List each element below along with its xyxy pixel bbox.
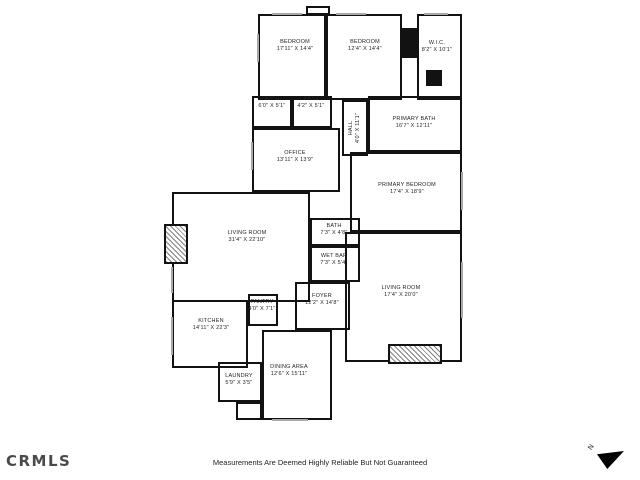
- north-arrow-icon: [597, 451, 624, 469]
- floorplan-page: BEDROOM17'11" X 14'4"BEDROOM12'4" X 14'4…: [0, 0, 640, 480]
- fireplace-right: [388, 344, 442, 364]
- room-name: HALL: [348, 113, 355, 143]
- room-dimensions: 7'3" X 5'4": [320, 260, 347, 267]
- solid-chase-top: [402, 28, 417, 58]
- room-name: PRIMARY BEDROOM: [378, 182, 436, 189]
- room-dimensions: 4'2" X 5'1": [297, 103, 324, 110]
- room-label-kitchen: KITCHEN14'11" X 22'3": [193, 318, 230, 332]
- floor-plan: BEDROOM17'11" X 14'4"BEDROOM12'4" X 14'4…: [0, 0, 640, 480]
- room-dimensions: 6'0" X 5'1": [258, 103, 285, 110]
- window-segment: [251, 142, 253, 170]
- footer: CRMLS Measurements Are Deemed Highly Rel…: [0, 440, 640, 480]
- room-label-laundry: LAUNDRY5'9" X 3'5": [225, 373, 253, 387]
- room-name: DINING AREA: [270, 364, 308, 371]
- room-name: LIVING ROOM: [228, 230, 267, 237]
- room-label-bedroom-2: BEDROOM12'4" X 14'4": [348, 39, 382, 53]
- room-dimensions: 14'11" X 22'3": [193, 325, 230, 332]
- room-label-wet-bar: WET BAR7'3" X 5'4": [320, 253, 347, 267]
- room-label-office: OFFICE13'11" X 13'9": [277, 150, 314, 164]
- room-dimensions: 12'6" X 15'11": [270, 371, 308, 378]
- room-name: OFFICE: [277, 150, 314, 157]
- room-name: BATH: [258, 96, 285, 103]
- window-segment: [272, 13, 302, 15]
- room-label-hall: HALL4'0" X 11'1": [348, 113, 362, 143]
- window-segment: [272, 419, 308, 421]
- room-name: LIVING ROOM: [382, 285, 421, 292]
- window-segment: [171, 317, 173, 355]
- room-dimensions: 17'11" X 14'4": [277, 46, 314, 53]
- room-label-primary-bath: PRIMARY BATH16'7" X 12'11": [392, 116, 435, 130]
- room-label-living-room-1: LIVING ROOM31'4" X 22'10": [228, 230, 267, 244]
- chimney-top: [306, 6, 330, 15]
- room-name: BATH: [320, 223, 347, 230]
- room-label-foyer: FOYER12'2" X 14'8": [305, 293, 339, 307]
- window-segment: [257, 34, 259, 62]
- room-living-room-1: [172, 192, 310, 302]
- room-dimensions: 4'0" X 11'1": [355, 113, 362, 143]
- room-kitchen: [172, 300, 248, 368]
- room-name: BATH: [297, 96, 324, 103]
- room-name: LAUNDRY: [225, 373, 253, 380]
- room-bedroom-2: [326, 14, 402, 100]
- disclaimer-text: Measurements Are Deemed Highly Reliable …: [0, 458, 640, 467]
- fireplace-left: [164, 224, 188, 264]
- window-segment: [336, 13, 366, 15]
- closet-nook: [236, 402, 262, 420]
- room-name: BEDROOM: [348, 39, 382, 46]
- room-dimensions: 7'3" X 4'8": [320, 230, 347, 237]
- room-dimensions: 4'0" X 7'1": [248, 306, 275, 313]
- room-bedroom-1: [258, 14, 326, 100]
- room-name: BEDROOM: [277, 39, 314, 46]
- window-segment: [171, 267, 173, 293]
- room-name: PANTRY: [248, 299, 275, 306]
- compass-n-label: N: [587, 443, 596, 451]
- room-label-bath-2: BATH4'2" X 5'1": [297, 96, 324, 110]
- solid-chase-wic: [426, 70, 442, 86]
- room-label-bath-3: BATH7'3" X 4'8": [320, 223, 347, 237]
- room-label-primary-bedroom: PRIMARY BEDROOM17'4" X 18'9": [378, 182, 436, 196]
- window-segment: [424, 13, 448, 15]
- room-label-dining-area: DINING AREA12'6" X 15'11": [270, 364, 308, 378]
- room-dimensions: 12'4" X 14'4": [348, 46, 382, 53]
- room-dimensions: 17'4" X 18'9": [378, 189, 436, 196]
- room-label-bath-1: BATH6'0" X 5'1": [258, 96, 285, 110]
- room-label-bedroom-1: BEDROOM17'11" X 14'4": [277, 39, 314, 53]
- room-name: WET BAR: [320, 253, 347, 260]
- room-dimensions: 31'4" X 22'10": [228, 237, 267, 244]
- room-label-pantry: PANTRY4'0" X 7'1": [248, 299, 275, 313]
- compass-north-indicator: N: [588, 444, 624, 472]
- room-name: FOYER: [305, 293, 339, 300]
- room-dimensions: 17'4" X 20'0": [382, 292, 421, 299]
- window-segment: [461, 262, 463, 318]
- room-dimensions: 5'9" X 3'5": [225, 380, 253, 387]
- room-label-wic: W.I.C.8'2" X 10'1": [422, 40, 452, 54]
- room-name: PRIMARY BATH: [392, 116, 435, 123]
- room-dimensions: 8'2" X 10'1": [422, 47, 452, 54]
- room-dimensions: 16'7" X 12'11": [392, 123, 435, 130]
- room-name: KITCHEN: [193, 318, 230, 325]
- window-segment: [461, 172, 463, 210]
- room-dimensions: 13'11" X 13'9": [277, 157, 314, 164]
- room-wic: [417, 14, 462, 100]
- room-dimensions: 12'2" X 14'8": [305, 300, 339, 307]
- room-label-living-room-2: LIVING ROOM17'4" X 20'0": [382, 285, 421, 299]
- room-name: W.I.C.: [422, 40, 452, 47]
